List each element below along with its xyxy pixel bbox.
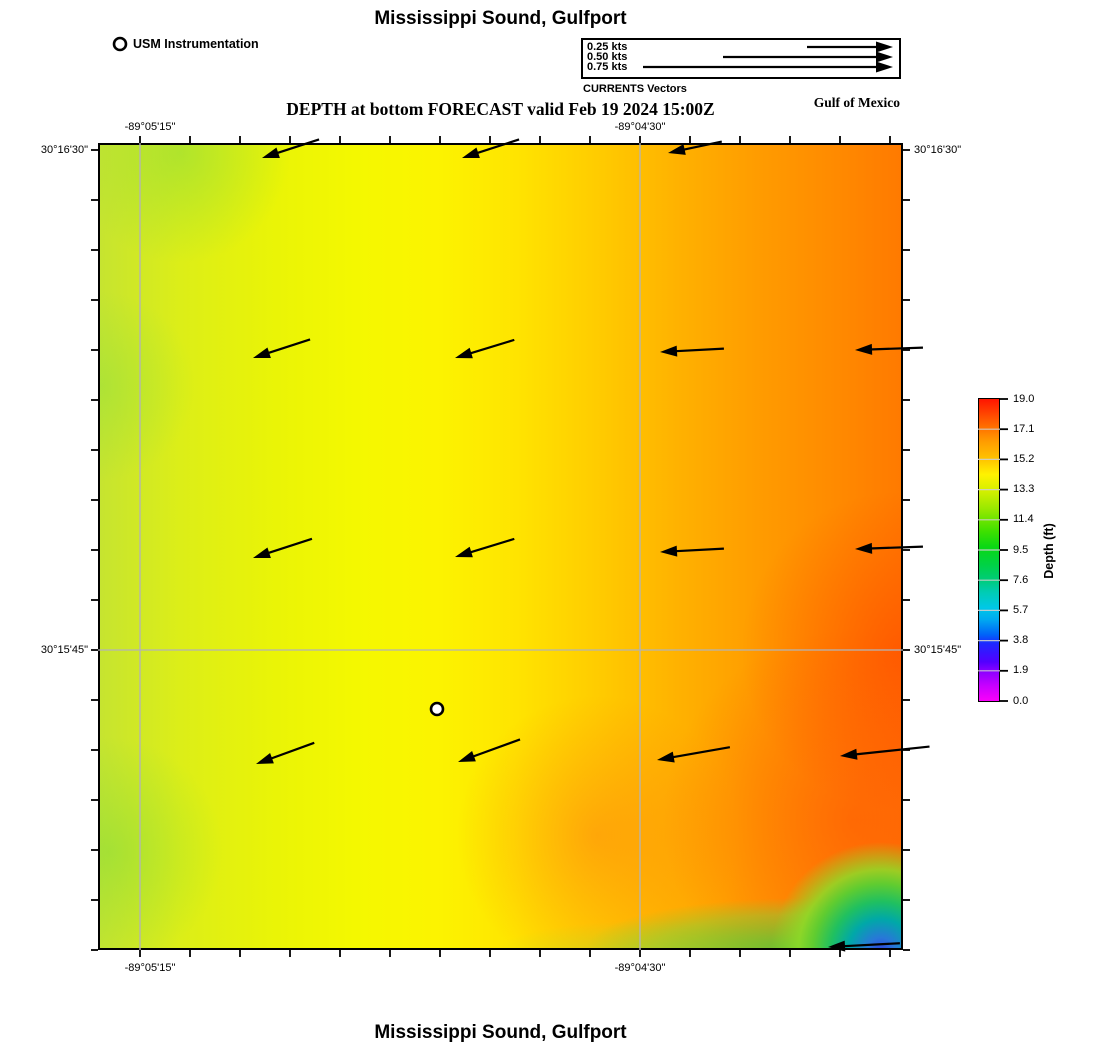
footer-title: Mississippi Sound, Gulfport (98, 1022, 903, 1044)
station-marker (114, 38, 126, 50)
axis-label-right-lat2: 30°15'45" (914, 644, 961, 656)
axis-label-left-lat1: 30°16'30" (8, 144, 88, 156)
colorbar-tick-19.0: 19.0 (1013, 393, 1053, 405)
figure-canvas: Mississippi Sound, Gulfport USM Instrume… (0, 0, 1100, 1050)
station-legend-label: USM Instrumentation (133, 37, 259, 51)
colorbar (978, 398, 1000, 702)
axis-label-bottom-lon2: -89°04'30" (580, 962, 700, 974)
page-title: Mississippi Sound, Gulfport (98, 8, 903, 30)
colorbar-tick-17.1: 17.1 (1013, 423, 1053, 435)
axis-label-bottom-lon1: -89°05'15" (90, 962, 210, 974)
depth-heatmap (98, 143, 903, 950)
legend-speed-075: 0.75 kts (587, 62, 627, 72)
currents-legend-box: 0.25 kts 0.50 kts 0.75 kts (581, 38, 901, 79)
currents-legend-caption: CURRENTS Vectors (583, 83, 687, 95)
colorbar-tick-5.7: 5.7 (1013, 604, 1053, 616)
axis-label-right-lat1: 30°16'30" (914, 144, 961, 156)
forecast-subtitle: DEPTH at bottom FORECAST valid Feb 19 20… (98, 99, 903, 120)
colorbar-tick-15.2: 15.2 (1013, 453, 1053, 465)
colorbar-tick-3.8: 3.8 (1013, 634, 1053, 646)
colorbar-tick-0.0: 0.0 (1013, 695, 1053, 707)
colorbar-axis-label: Depth (ft) (1042, 523, 1056, 579)
axis-label-top-lon2: -89°04'30" (580, 121, 700, 133)
colorbar-tick-1.9: 1.9 (1013, 664, 1053, 676)
axis-label-top-lon1: -89°05'15" (90, 121, 210, 133)
axis-label-left-lat2: 30°15'45" (8, 644, 88, 656)
colorbar-tick-13.3: 13.3 (1013, 483, 1053, 495)
